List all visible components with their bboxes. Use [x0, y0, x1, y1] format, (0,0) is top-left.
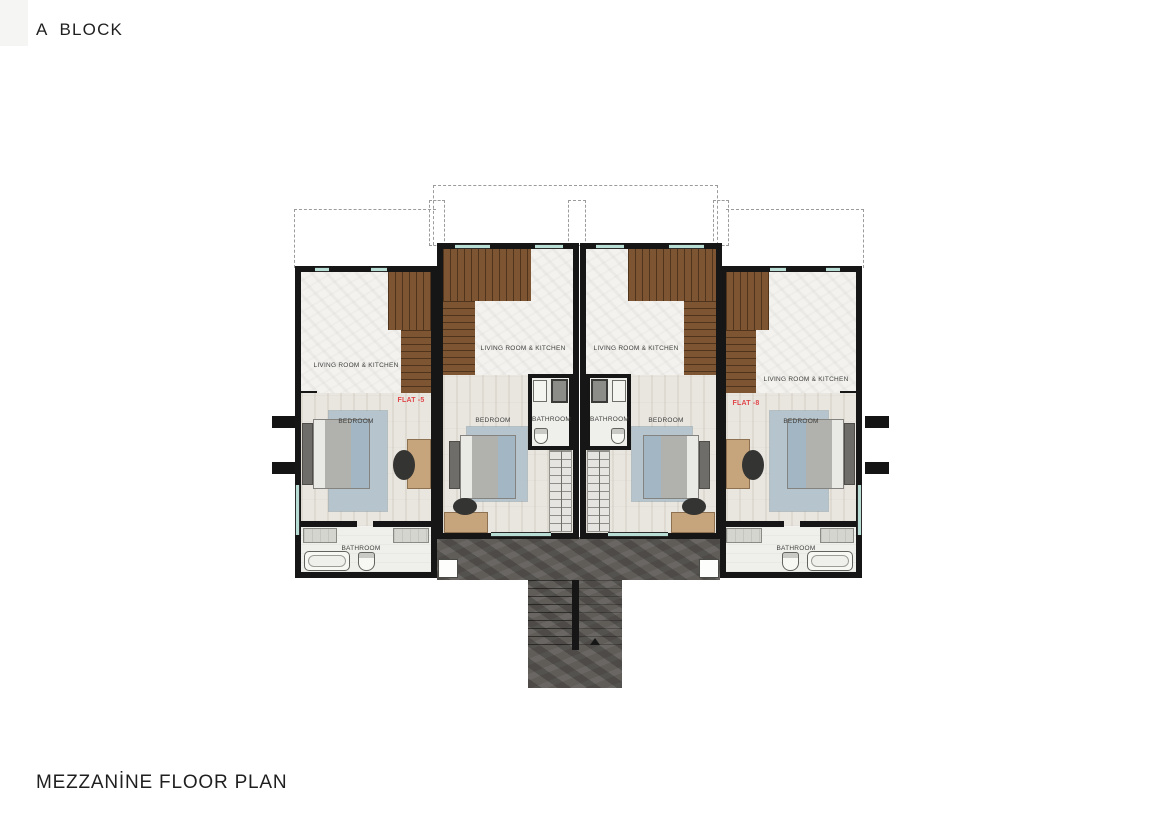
wall-stub	[272, 416, 296, 428]
bed-headboard	[844, 423, 855, 485]
bed-headboard	[449, 441, 460, 489]
bedroom-label: BEDROOM	[636, 417, 696, 424]
window	[315, 267, 329, 272]
window	[770, 267, 786, 272]
interior-stairs	[726, 330, 756, 397]
bathroom-vanity	[612, 380, 626, 402]
bed	[643, 435, 699, 499]
wardrobe	[549, 450, 572, 532]
toilet	[358, 552, 375, 571]
bed	[460, 435, 516, 499]
dashed-overhang-right	[726, 209, 864, 268]
stair-divider-wall	[572, 580, 579, 650]
shower	[591, 379, 608, 403]
stone-terrace	[437, 537, 720, 580]
window	[295, 485, 300, 535]
bed-headboard	[302, 423, 313, 485]
bathroom-label: BATHROOM	[532, 416, 569, 423]
exterior-staircase	[528, 580, 622, 688]
bed	[313, 419, 370, 489]
desk-chair	[682, 498, 706, 515]
dashed-overhang-left	[294, 209, 436, 268]
flat-5: LIVING ROOM & KITCHEN FLAT -5 BEDROOM BA…	[295, 266, 437, 578]
stair-treads-dashed	[579, 580, 622, 646]
window	[596, 244, 624, 249]
interior-stairs	[443, 249, 531, 301]
bathtub	[807, 551, 853, 571]
flat-number-label: FLAT -5	[391, 397, 431, 404]
window	[669, 244, 704, 249]
interior-stairs	[726, 272, 769, 330]
flat-8: LIVING ROOM & KITCHEN FLAT -8 BEDROOM BA…	[720, 266, 862, 578]
window	[455, 244, 490, 249]
desk-chair	[393, 450, 415, 480]
bed	[787, 419, 844, 489]
flat-number-label: FLAT -8	[726, 400, 766, 407]
living-room-label: LIVING ROOM & KITCHEN	[756, 376, 856, 383]
patio-door	[608, 532, 668, 537]
desk	[444, 512, 488, 533]
flat-7: LIVING ROOM & KITCHEN FLAT -7 BATHROOM B…	[580, 243, 722, 539]
bedroom-label: BEDROOM	[766, 418, 836, 425]
stair-direction-arrow	[590, 638, 600, 645]
bathtub	[304, 551, 350, 571]
toilet	[611, 428, 625, 444]
interior-stairs	[388, 272, 431, 330]
bathtub-basin	[811, 555, 849, 567]
window	[857, 485, 862, 535]
bedroom-label: BEDROOM	[321, 418, 391, 425]
window	[535, 244, 563, 249]
dashed-column-right	[713, 200, 729, 246]
block-title: A BLOCK	[36, 20, 123, 40]
wardrobe	[587, 450, 610, 532]
living-room-label: LIVING ROOM & KITCHEN	[473, 345, 573, 352]
door-landing-left	[438, 559, 458, 578]
wall-stub	[272, 462, 296, 474]
bathroom: BATHROOM	[586, 374, 631, 450]
living-room-label: LIVING ROOM & KITCHEN	[306, 362, 406, 369]
bed-headboard	[699, 441, 710, 489]
desk-chair	[453, 498, 477, 515]
bathroom: BATHROOM	[528, 374, 573, 450]
bedroom-label: BEDROOM	[463, 417, 523, 424]
bathtub-basin	[308, 555, 346, 567]
bathroom-vanity	[533, 380, 547, 402]
dashed-column-center	[568, 200, 586, 246]
scan-artifact	[0, 0, 28, 46]
bathroom-label: BATHROOM	[590, 416, 627, 423]
bathroom-counter	[726, 528, 762, 543]
floor-plan-page: A BLOCK MEZZANİNE FLOOR PLAN LIVING ROOM…	[0, 0, 1161, 821]
bathroom-counter	[393, 528, 429, 543]
interior-stairs	[628, 249, 716, 301]
desk	[671, 512, 715, 533]
floor-plan-caption: MEZZANİNE FLOOR PLAN	[36, 772, 287, 794]
toilet	[534, 428, 548, 444]
bathroom-counter	[820, 528, 854, 543]
bathroom-counter	[303, 528, 337, 543]
door-landing-right	[699, 559, 719, 578]
stair-treads-down	[528, 580, 572, 646]
window	[826, 267, 840, 272]
shower	[551, 379, 568, 403]
wall-stub	[865, 416, 889, 428]
wall-stub	[865, 462, 889, 474]
dashed-column-left	[429, 200, 445, 246]
patio-door	[491, 532, 551, 537]
toilet	[782, 552, 799, 571]
flat-6: LIVING ROOM & KITCHEN FLAT -6 BATHROOM B…	[437, 243, 579, 539]
window	[371, 267, 387, 272]
living-room-label: LIVING ROOM & KITCHEN	[586, 345, 686, 352]
desk-chair	[742, 450, 764, 480]
